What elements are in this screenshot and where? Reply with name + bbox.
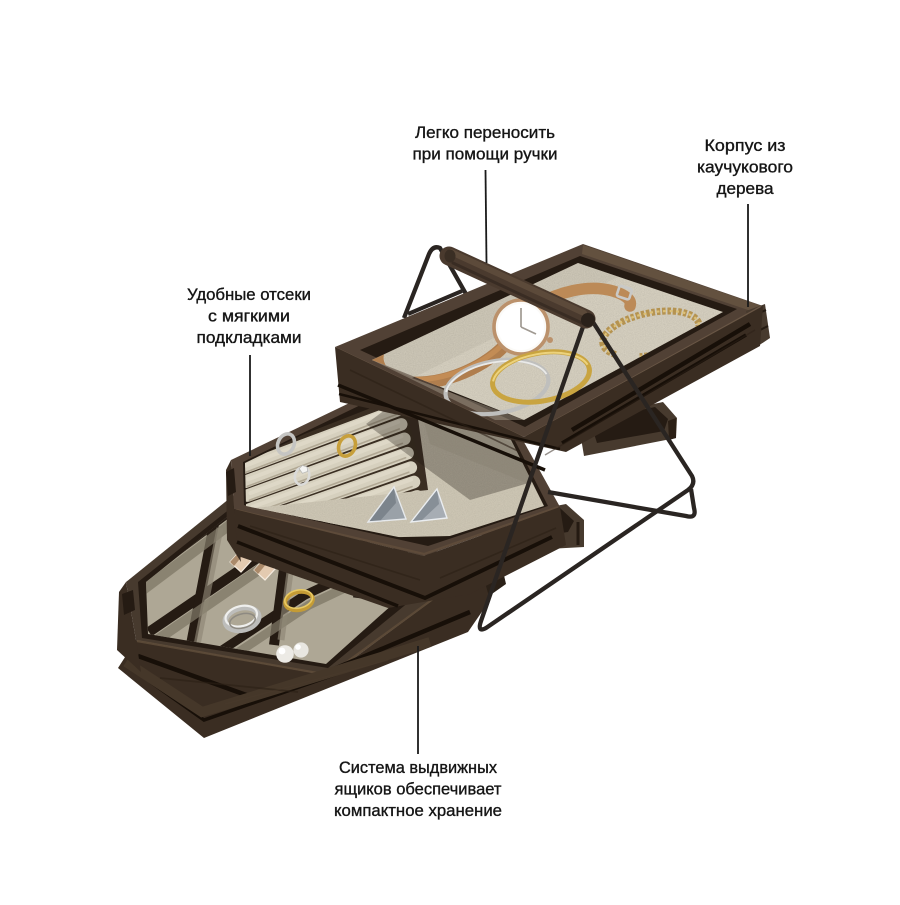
svg-text:ящиков обеспечивает: ящиков обеспечивает (335, 780, 502, 798)
svg-text:с мягкими: с мягкими (208, 307, 290, 325)
svg-text:Корпус из: Корпус из (705, 137, 786, 155)
svg-text:компактное хранение: компактное хранение (334, 802, 502, 820)
svg-text:подкладками: подкладками (197, 329, 302, 347)
svg-text:при помощи ручки: при помощи ручки (413, 145, 558, 163)
svg-text:Система выдвижных: Система выдвижных (339, 759, 498, 777)
svg-text:Легко переносить: Легко переносить (415, 124, 555, 142)
svg-text:дерева: дерева (717, 180, 775, 198)
svg-text:Удобные отсеки: Удобные отсеки (187, 286, 311, 304)
svg-text:каучукового: каучукового (697, 158, 793, 176)
